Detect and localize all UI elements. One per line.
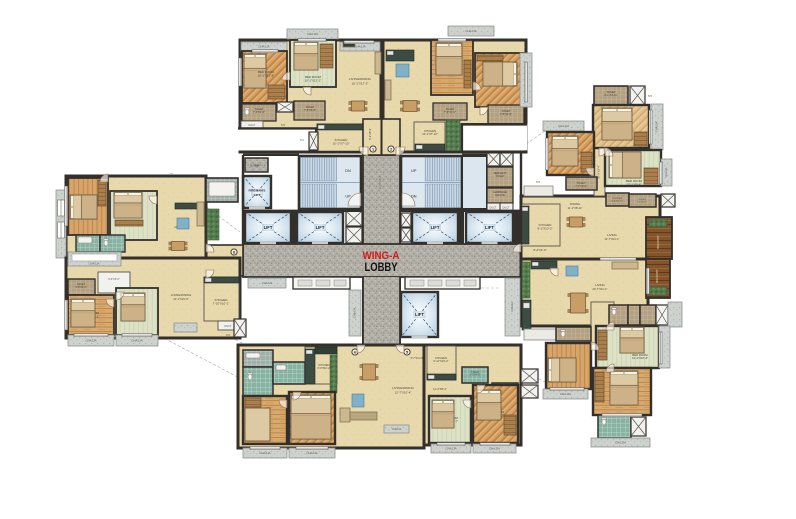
svg-text:6'-6"X3'-0": 6'-6"X3'-0" [108, 278, 120, 281]
svg-text:CHAJJA: CHAJJA [259, 451, 270, 455]
svg-text:5.5: 5.5 [281, 123, 285, 127]
svg-text:CHAJJA: CHAJJA [489, 447, 500, 451]
svg-text:UP: UP [345, 194, 351, 198]
svg-text:LIFT: LIFT [431, 225, 440, 230]
svg-text:LIVING: LIVING [607, 233, 617, 237]
svg-text:8: 8 [233, 250, 235, 254]
svg-text:11'-4"X8'-4": 11'-4"X8'-4" [433, 387, 447, 391]
svg-text:LIFT: LIFT [316, 225, 325, 230]
svg-text:DN: DN [345, 169, 351, 173]
svg-text:LIFT: LIFT [415, 312, 424, 317]
svg-text:6'-11"X10'-2": 6'-11"X10'-2" [433, 359, 448, 363]
svg-text:CHAJJA: CHAJJA [655, 122, 659, 133]
svg-text:7'-6"X4'-0": 7'-6"X4'-0" [444, 110, 456, 114]
svg-text:10'-1"X12'-2": 10'-1"X12'-2" [305, 78, 322, 82]
svg-text:LIVING: LIVING [595, 283, 605, 287]
svg-text:LIFT: LIFT [254, 193, 261, 197]
svg-text:CHAJJA: CHAJJA [615, 441, 626, 445]
svg-text:LIVING/DINING: LIVING/DINING [349, 77, 371, 81]
svg-text:10'-1"X17'-3": 10'-1"X17'-3" [352, 82, 369, 86]
svg-text:2: 2 [390, 147, 392, 151]
svg-text:12'-7"X11'-1": 12'-7"X11'-1" [604, 237, 619, 241]
svg-text:10'-1"X7'-10": 10'-1"X7'-10" [422, 132, 438, 136]
svg-text:CHAJJA: CHAJJA [558, 124, 569, 128]
svg-text:6.5: 6.5 [226, 333, 230, 337]
svg-text:10'-1"X7'-10": 10'-1"X7'-10" [333, 141, 350, 145]
svg-text:CHAJJA: CHAJJA [306, 451, 317, 455]
svg-text:7'-10"X10'-1": 7'-10"X10'-1" [213, 301, 230, 305]
svg-text:6'-0"X10'-2": 6'-0"X10'-2" [317, 367, 330, 370]
svg-text:5.5: 5.5 [648, 94, 652, 98]
svg-text:7'-1"X4'-1": 7'-1"X4'-1" [637, 202, 647, 204]
svg-text:LOBBY: LOBBY [365, 260, 398, 274]
svg-text:20'-7"X11'-1": 20'-7"X11'-1" [592, 287, 607, 291]
svg-text:CHAJJA: CHAJJA [131, 339, 142, 343]
svg-text:5: 5 [406, 350, 408, 354]
svg-text:TOILET: TOILET [495, 174, 505, 178]
svg-text:CHAJJA: CHAJJA [560, 392, 571, 396]
svg-text:7'-5"X4'-5": 7'-5"X4'-5" [304, 108, 316, 112]
svg-text:DUCT: DUCT [490, 207, 497, 210]
svg-text:LIFT: LIFT [264, 225, 273, 230]
svg-text:DUCT: DUCT [249, 124, 256, 127]
svg-text:12'-7"X10'-4": 12'-7"X10'-4" [395, 391, 412, 395]
svg-text:CHAJJA: CHAJJA [89, 262, 100, 266]
svg-text:TOILET: TOILET [471, 372, 480, 374]
svg-text:5.1: 5.1 [300, 138, 304, 142]
svg-text:DUCT: DUCT [225, 325, 232, 328]
svg-text:LIVING/DINING: LIVING/DINING [392, 386, 414, 390]
svg-text:BALCONY: BALCONY [656, 235, 660, 249]
svg-text:12'-4"X10'-4": 12'-4"X10'-4" [632, 356, 648, 360]
svg-text:CHAJJA: CHAJJA [664, 167, 668, 177]
svg-text:CHAJJA: CHAJJA [258, 45, 269, 49]
svg-text:5'-7"X11'-8": 5'-7"X11'-8" [411, 357, 424, 360]
svg-text:UP: UP [411, 169, 417, 173]
svg-text:BALCONY: BALCONY [655, 269, 659, 283]
svg-text:LIVING/DINING: LIVING/DINING [171, 293, 192, 297]
svg-text:LIFT: LIFT [485, 225, 494, 230]
svg-text:10'-1"X11'-9": 10'-1"X11'-9" [258, 73, 274, 77]
svg-text:6'-8"X4'-0": 6'-8"X4'-0" [75, 286, 86, 289]
svg-text:11'-1"X8'-11": 11'-1"X8'-11" [567, 206, 582, 210]
svg-text:DUCT: DUCT [503, 207, 510, 210]
svg-text:CHAJJA: CHAJJA [307, 32, 318, 36]
svg-text:CHAJJA: CHAJJA [445, 447, 456, 451]
svg-text:8'-1"X3'-11": 8'-1"X3'-11" [604, 93, 617, 97]
svg-text:CHAJJA: CHAJJA [353, 308, 357, 319]
svg-text:12'-1"X9'-6": 12'-1"X9'-6" [626, 182, 641, 186]
svg-text:5.5: 5.5 [536, 180, 540, 184]
svg-text:CHAJJA: CHAJJA [354, 45, 365, 49]
svg-text:5'-4"X4'-11": 5'-4"X4'-11" [611, 201, 622, 203]
svg-text:6: 6 [354, 350, 356, 354]
svg-text:CHAJJA: CHAJJA [262, 281, 273, 285]
svg-text:16'-5"X5'-6": 16'-5"X5'-6" [378, 175, 382, 190]
svg-text:CHUTE: CHUTE [495, 193, 504, 197]
svg-text:1: 1 [372, 147, 374, 151]
svg-text:CHAJJA: CHAJJA [465, 29, 476, 33]
svg-text:7'-6"X4'-0": 7'-6"X4'-0" [470, 375, 481, 377]
svg-text:LOBBY: LOBBY [251, 164, 261, 168]
svg-text:CHAJJA: CHAJJA [510, 302, 514, 312]
svg-text:8'-1"X10'-2": 8'-1"X10'-2" [537, 226, 552, 230]
svg-text:7'-5"X4'-5": 7'-5"X4'-5" [500, 112, 512, 116]
svg-text:8'-4"X4'-0": 8'-4"X4'-0" [533, 248, 546, 252]
svg-text:7'-6"X4'-0": 7'-6"X4'-0" [253, 110, 265, 114]
svg-text:DINING: DINING [570, 202, 581, 206]
svg-text:CHAJJA: CHAJJA [85, 339, 96, 343]
svg-text:CHAJJA: CHAJJA [392, 428, 402, 431]
svg-text:10'-1"X15'-9": 10'-1"X15'-9" [173, 297, 189, 301]
svg-text:7'-7"X4'-0": 7'-7"X4'-0" [575, 185, 587, 188]
svg-text:5'-2"X6'-9": 5'-2"X6'-9" [368, 128, 372, 140]
